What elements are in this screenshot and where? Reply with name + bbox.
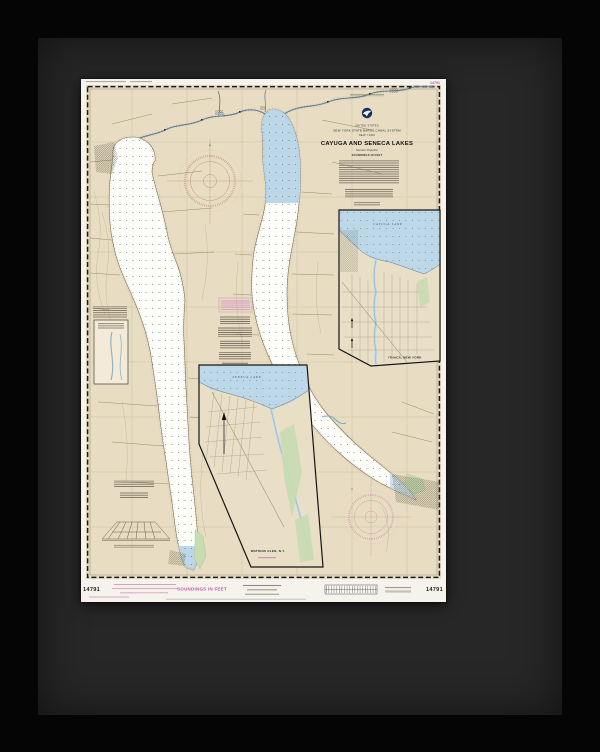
nautical-chart: CAYUGA LAKE ITHACA, NEW YORK <box>81 79 446 602</box>
seneca-lake-label: SENECA LAKE <box>233 375 262 379</box>
inset-ithaca: CAYUGA LAKE ITHACA, NEW YORK <box>339 210 440 366</box>
scale-bar <box>325 585 377 594</box>
watkins-inset-title: WATKINS GLEN, N.Y. <box>251 549 285 553</box>
noaa-logo <box>362 108 372 118</box>
ithaca-inset-title: ITHACA, NEW YORK <box>388 356 422 360</box>
bottom-margin: 14791 SOUNDINGS IN FEET 14791 <box>83 584 443 600</box>
notes-paragraph <box>339 160 399 184</box>
notes-column <box>218 298 252 367</box>
chart-paper: CAYUGA LAKE ITHACA, NEW YORK <box>81 79 446 602</box>
inset-profile-box <box>93 306 128 384</box>
chart-number-bottom-left: 14791 <box>83 587 100 593</box>
framed-chart-photo: CAYUGA LAKE ITHACA, NEW YORK <box>0 0 600 752</box>
soundings-note-small: SOUNDINGS IN FEET <box>352 153 383 157</box>
chart-title: CAYUGA AND SENECA LAKES <box>321 141 413 147</box>
header-authority: NEW YORK STATE BARGE CANAL SYSTEM <box>333 128 401 132</box>
top-margin: 14791 <box>86 80 440 85</box>
header-state: NEW YORK <box>359 133 375 137</box>
chart-number-bottom-right: 14791 <box>426 587 443 593</box>
projection-note: Mercator Projection <box>356 149 378 152</box>
soundings-in-feet: SOUNDINGS IN FEET <box>177 587 227 592</box>
chart-number-top-right: 14791 <box>430 81 440 85</box>
cayuga-lake-label: CAYUGA LAKE <box>373 222 402 226</box>
header-country: UNITED STATES <box>355 124 379 128</box>
